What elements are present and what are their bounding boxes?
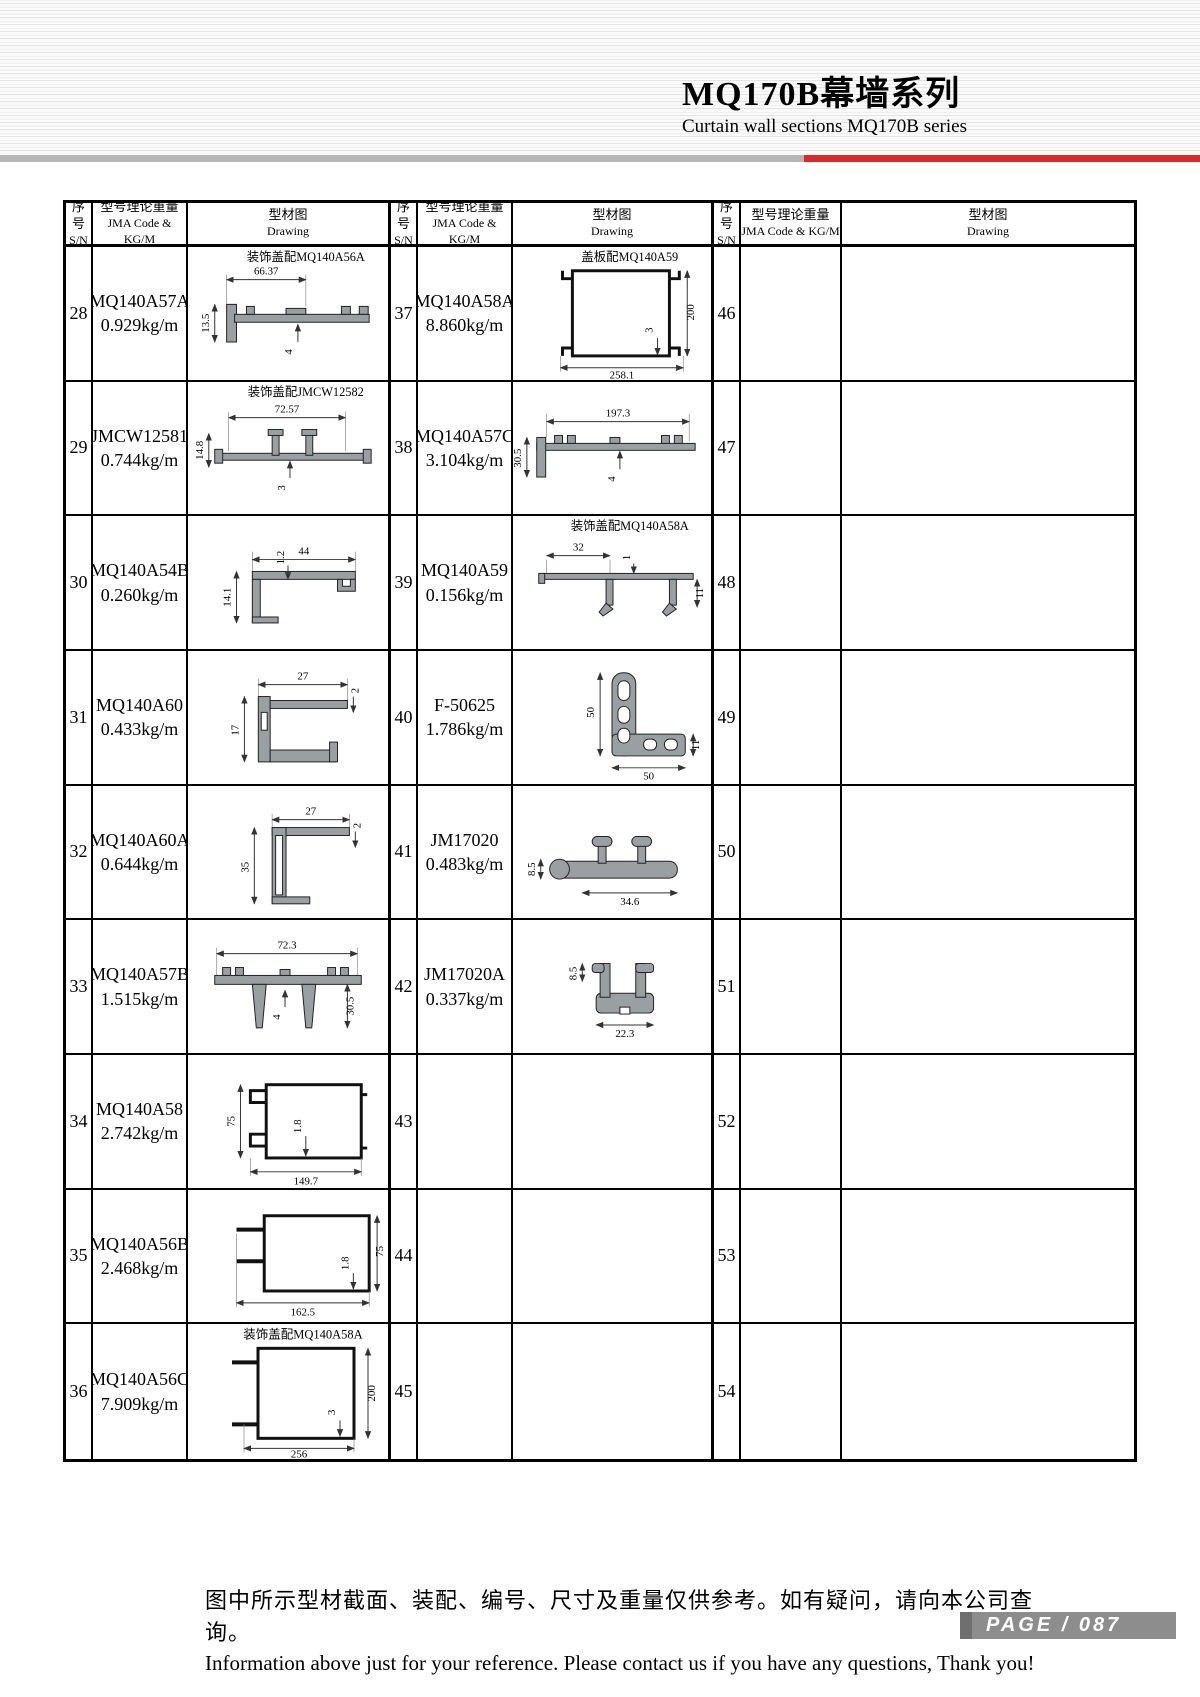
dim-label: 2: [351, 823, 363, 828]
dim-label: 1.8: [292, 1119, 304, 1133]
dim-label: 162.5: [291, 1306, 316, 1318]
code-cell: [741, 1324, 842, 1459]
sn-cell: 48: [714, 516, 741, 651]
sn-cell: 45: [391, 1324, 418, 1459]
dim-label: 3: [644, 327, 656, 333]
dim-label: 27: [305, 805, 316, 817]
code-cell: [741, 920, 842, 1055]
drawing-cell: 装饰盖配MQ140A58A 200 3 256: [188, 1324, 391, 1459]
profile-drawing-MQ140A59: 装饰盖配MQ140A58A 32 1 11: [513, 516, 711, 649]
profile-drawing-MQ140A56C: 装饰盖配MQ140A58A 200 3 256: [188, 1324, 388, 1459]
footer-note-chinese: 图中所示型材截面、装配、编号、尺寸及重量仅供参考。如有疑问，请向本公司查询。: [205, 1583, 1035, 1647]
dim-label: 3: [276, 484, 288, 490]
code-cell: JM170200.483kg/m: [418, 786, 513, 921]
code-cell: [741, 1055, 842, 1190]
code-cell: MQ140A60A0.644kg/m: [93, 786, 188, 921]
drawing-cell: 72.3 4 30.5: [188, 920, 391, 1055]
dim-label: 1: [621, 555, 633, 560]
drawing-cell: 8.5 34.6: [513, 786, 714, 921]
sn-cell: 43: [391, 1055, 418, 1190]
page-number-label: PAGE / 087: [986, 1614, 1121, 1637]
profile-drawing-MQ140A58: 75 1.8 149.7: [188, 1055, 388, 1188]
code-cell: MQ140A582.742kg/m: [93, 1055, 188, 1190]
code-cell: MQ140A58A8.860kg/m: [418, 247, 513, 382]
code-cell: MQ140A57A0.929kg/m: [93, 247, 188, 382]
code-label: MQ140A54B: [93, 558, 188, 582]
dim-label: 75: [374, 1245, 386, 1256]
weight-label: 0.156kg/m: [426, 583, 504, 607]
sn-cell: 40: [391, 651, 418, 786]
sn-cell: 37: [391, 247, 418, 382]
sn-cell: 33: [66, 920, 93, 1055]
code-label: MQ140A58A: [418, 289, 513, 313]
sn-cell: 46: [714, 247, 741, 382]
drawing-cell: [513, 1324, 714, 1459]
code-cell: [741, 247, 842, 382]
dim-label: 200: [685, 304, 697, 321]
col-header-sn-a: 序号S/N: [66, 203, 93, 247]
drawing-cell: [513, 1055, 714, 1190]
drawing-cell: 盖板配MQ140A59 200 3 258.1: [513, 247, 714, 382]
col-header-draw-b: 型材图Drawing: [513, 203, 714, 247]
dim-label: 4: [606, 475, 618, 481]
drawing-cell: 装饰盖配JMCW12582 72.57 14.8 3: [188, 382, 391, 517]
drawing-cell: 装饰盖配MQ140A58A 32 1 11: [513, 516, 714, 651]
code-cell: MQ140A54B0.260kg/m: [93, 516, 188, 651]
dim-label: 66.37: [254, 266, 279, 278]
code-label: MQ140A56B: [93, 1232, 188, 1256]
footer-note: 图中所示型材截面、装配、编号、尺寸及重量仅供参考。如有疑问，请向本公司查询。 I…: [205, 1583, 1035, 1676]
drawing-cell: 50 11 50: [513, 651, 714, 786]
drawing-cell: [842, 516, 1134, 651]
profile-drawing-F-50625: 50 11 50: [513, 651, 711, 784]
footer-note-english: Information above just for your referenc…: [205, 1651, 1035, 1676]
weight-label: 2.742kg/m: [101, 1121, 179, 1145]
code-cell: [741, 651, 842, 786]
dim-label: 30.5: [344, 996, 356, 1016]
weight-label: 1.515kg/m: [101, 987, 179, 1011]
drawing-caption: 装饰盖配MQ140A56A: [247, 250, 365, 264]
drawing-cell: 162.5 1.8 75: [188, 1190, 391, 1325]
col-header-code-b: 型号理论重量JMA Code & KG/M: [418, 203, 513, 247]
sn-cell: 39: [391, 516, 418, 651]
drawing-cell: [842, 1324, 1134, 1459]
code-cell: MQ140A600.433kg/m: [93, 651, 188, 786]
dim-label: 44: [298, 546, 309, 558]
drawing-cell: 8.5 22.3: [513, 920, 714, 1055]
sn-cell: 49: [714, 651, 741, 786]
weight-label: 3.104kg/m: [426, 448, 504, 472]
dim-label: 1.2: [275, 551, 287, 565]
profile-drawing-JM17020A: 8.5 22.3: [513, 920, 711, 1053]
weight-label: 2.468kg/m: [101, 1256, 179, 1280]
sn-cell: 32: [66, 786, 93, 921]
col-header-draw-c: 型材图Drawing: [842, 203, 1134, 247]
dim-label: 200: [366, 1385, 378, 1402]
dim-label: 1.8: [339, 1256, 351, 1270]
code-label: MQ140A59: [421, 558, 508, 582]
sn-cell: 38: [391, 382, 418, 517]
weight-label: 0.337kg/m: [426, 987, 504, 1011]
profile-drawing-JM17020: 8.5 34.6: [513, 786, 711, 919]
code-cell: JM17020A0.337kg/m: [418, 920, 513, 1055]
weight-label: 0.260kg/m: [101, 583, 179, 607]
dim-label: 11: [694, 588, 706, 598]
weight-label: 0.929kg/m: [101, 313, 179, 337]
weight-label: 1.786kg/m: [426, 717, 504, 741]
drawing-caption: 装饰盖配MQ140A58A: [571, 519, 689, 533]
drawing-cell: 44 14.1 1.2: [188, 516, 391, 651]
code-cell: F-506251.786kg/m: [418, 651, 513, 786]
dim-label: 149.7: [294, 1176, 319, 1188]
sn-cell: 30: [66, 516, 93, 651]
dim-label: 17: [230, 724, 242, 735]
sn-cell: 42: [391, 920, 418, 1055]
drawing-cell: 197.3 30.5 4: [513, 382, 714, 517]
dim-label: 75: [226, 1115, 238, 1126]
drawing-caption: 装饰盖配JMCW12582: [248, 385, 364, 399]
dim-label: 13.5: [200, 313, 212, 333]
profile-drawing-MQ140A57B: 72.3 4 30.5: [188, 920, 388, 1053]
col-header-code-a: 型号理论重量JMA Code & KG/M: [93, 203, 188, 247]
code-cell: MQ140A57C3.104kg/m: [418, 382, 513, 517]
dim-label: 3: [326, 1409, 338, 1415]
dim-label: 22.3: [615, 1028, 635, 1040]
dim-label: 256: [291, 1449, 308, 1459]
drawing-cell: 75 1.8 149.7: [188, 1055, 391, 1190]
dim-label: 35: [239, 861, 251, 872]
drawing-cell: [842, 920, 1134, 1055]
col-header-sn-c: 序号S/N: [714, 203, 741, 247]
sn-cell: 50: [714, 786, 741, 921]
dim-label: 11: [690, 740, 702, 750]
drawing-cell: [513, 1190, 714, 1325]
drawing-cell: [842, 786, 1134, 921]
code-label: JMCW12581: [93, 424, 188, 448]
code-cell: [741, 1190, 842, 1325]
code-label: MQ140A60A: [93, 828, 188, 852]
header-rule: [0, 155, 1200, 162]
profile-drawing-MQ140A54B: 44 14.1 1.2: [188, 516, 388, 649]
code-label: MQ140A57B: [93, 962, 188, 986]
dim-label: 72.57: [275, 403, 300, 415]
sn-cell: 54: [714, 1324, 741, 1459]
code-cell: MQ140A57B1.515kg/m: [93, 920, 188, 1055]
sn-cell: 31: [66, 651, 93, 786]
weight-label: 0.483kg/m: [426, 852, 504, 876]
profile-drawing-MQ140A60A: 27 35 2: [188, 786, 388, 919]
dim-label: 30.5: [513, 448, 524, 468]
code-label: MQ140A56C: [93, 1367, 188, 1391]
code-label: JM17020A: [424, 962, 505, 986]
drawing-cell: [842, 382, 1134, 517]
drawing-caption: 装饰盖配MQ140A58A: [243, 1328, 362, 1342]
profile-drawing-MQ140A57C: 197.3 30.5 4: [513, 382, 711, 515]
code-cell: [418, 1055, 513, 1190]
code-cell: [741, 516, 842, 651]
drawing-caption: 盖板配MQ140A59: [581, 250, 678, 264]
dim-label: 14.1: [222, 588, 234, 607]
sn-cell: 52: [714, 1055, 741, 1190]
profile-drawing-JMCW12581: 装饰盖配JMCW12582 72.57 14.8 3: [188, 382, 388, 515]
sn-cell: 47: [714, 382, 741, 517]
sn-cell: 53: [714, 1190, 741, 1325]
code-label: MQ140A57C: [418, 424, 513, 448]
code-label: MQ140A58: [96, 1097, 183, 1121]
sn-cell: 44: [391, 1190, 418, 1325]
profile-drawing-MQ140A60: 27 17 2: [188, 651, 388, 784]
code-cell: MQ140A56B2.468kg/m: [93, 1190, 188, 1325]
drawing-cell: 装饰盖配MQ140A56A 66.37 13.5 4: [188, 247, 391, 382]
dim-label: 197.3: [606, 407, 631, 419]
weight-label: 0.433kg/m: [101, 717, 179, 741]
dim-label: 258.1: [610, 370, 634, 380]
code-cell: JMCW125810.744kg/m: [93, 382, 188, 517]
page-badge: PAGE / 087: [960, 1612, 1176, 1639]
code-label: MQ140A57A: [93, 289, 188, 313]
sn-cell: 28: [66, 247, 93, 382]
page-top-texture: [0, 0, 1200, 154]
drawing-cell: [842, 1190, 1134, 1325]
dim-label: 72.3: [277, 940, 297, 952]
title-chinese: MQ170B幕墙系列: [682, 76, 967, 113]
sn-cell: 41: [391, 786, 418, 921]
dim-label: 8.5: [526, 861, 538, 875]
col-header-code-c: 型号理论重量JMA Code & KG/M: [741, 203, 842, 247]
dim-label: 8.5: [567, 966, 579, 980]
dim-label: 4: [271, 1014, 283, 1020]
profile-drawing-MQ140A57A: 装饰盖配MQ140A56A 66.37 13.5 4: [188, 247, 388, 380]
code-cell: MQ140A590.156kg/m: [418, 516, 513, 651]
drawing-cell: [842, 247, 1134, 382]
dim-label: 27: [297, 671, 308, 683]
sn-cell: 35: [66, 1190, 93, 1325]
code-cell: MQ140A56C7.909kg/m: [93, 1324, 188, 1459]
page-title: MQ170B幕墙系列 Curtain wall sections MQ170B …: [682, 76, 967, 138]
title-english: Curtain wall sections MQ170B series: [682, 116, 967, 138]
dim-label: 4: [283, 349, 295, 355]
dim-label: 14.8: [194, 440, 206, 460]
sn-cell: 34: [66, 1055, 93, 1190]
weight-label: 0.744kg/m: [101, 448, 179, 472]
sn-cell: 51: [714, 920, 741, 1055]
dim-label: 50: [643, 771, 654, 783]
sn-cell: 29: [66, 382, 93, 517]
dim-label: 50: [585, 706, 597, 717]
code-cell: [741, 382, 842, 517]
col-header-draw-a: 型材图Drawing: [188, 203, 391, 247]
code-label: MQ140A60: [96, 693, 183, 717]
profile-drawing-MQ140A56B: 162.5 1.8 75: [188, 1190, 388, 1323]
sn-cell: 36: [66, 1324, 93, 1459]
drawing-cell: 27 17 2: [188, 651, 391, 786]
drawing-cell: [842, 1055, 1134, 1190]
weight-label: 8.860kg/m: [426, 313, 504, 337]
sections-table: 序号S/N 型号理论重量JMA Code & KG/M 型材图Drawing 序…: [63, 200, 1137, 1462]
drawing-cell: 27 35 2: [188, 786, 391, 921]
dim-label: 2: [349, 688, 361, 693]
code-label: JM17020: [430, 828, 498, 852]
dim-label: 32: [573, 542, 584, 554]
drawing-cell: [842, 651, 1134, 786]
weight-label: 0.644kg/m: [101, 852, 179, 876]
weight-label: 7.909kg/m: [101, 1392, 179, 1416]
profile-drawing-MQ140A58A: 盖板配MQ140A59 200 3 258.1: [513, 247, 711, 380]
code-cell: [741, 786, 842, 921]
code-cell: [418, 1324, 513, 1459]
code-cell: [418, 1190, 513, 1325]
col-header-sn-b: 序号S/N: [391, 203, 418, 247]
dim-label: 34.6: [620, 895, 640, 907]
code-label: F-50625: [434, 693, 495, 717]
